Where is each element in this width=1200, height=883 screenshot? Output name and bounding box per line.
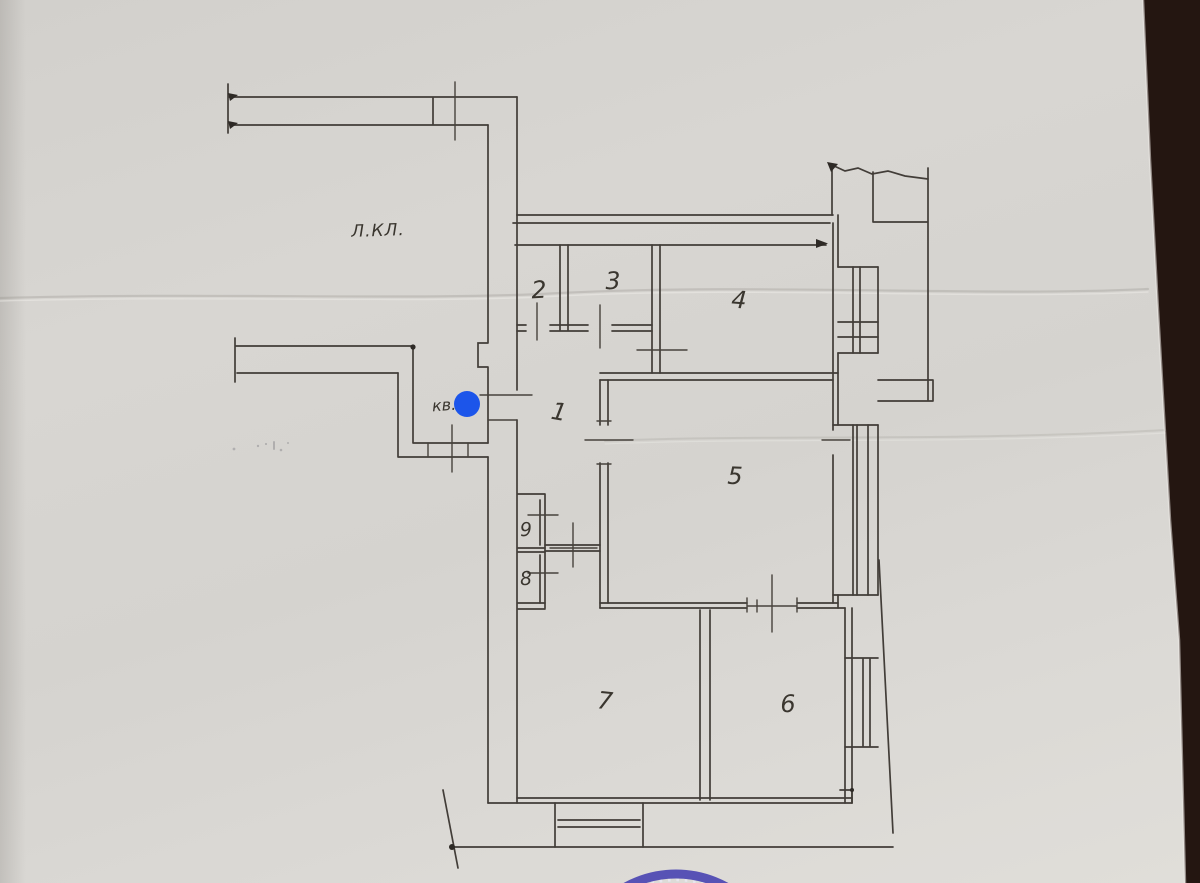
room-label-2: 2 (531, 276, 548, 305)
wall-lines (228, 84, 933, 868)
stairwell-label: Л.КЛ. (351, 220, 405, 242)
apartment-label: кв. (431, 395, 456, 416)
photo-of-floor-plan: Л.КЛ. кв. 1 2 3 4 5 6 7 8 9 (0, 0, 1200, 883)
paper-crease (0, 289, 1165, 444)
room-label-4: 4 (730, 286, 747, 315)
round-stamp (572, 874, 780, 883)
paper-edge (1143, 0, 1185, 883)
room-label-7: 7 (596, 686, 614, 715)
faint-smudge (233, 441, 289, 451)
room-label-9: 9 (519, 519, 532, 542)
room-label-8: 8 (519, 568, 533, 591)
room-label-3: 3 (605, 267, 621, 296)
floor-plan-drawing (0, 0, 1200, 883)
door-window-ticks (428, 82, 850, 632)
location-marker-dot (454, 391, 480, 417)
pen-marks (228, 93, 854, 850)
room-label-5: 5 (727, 462, 743, 491)
room-label-6: 6 (780, 690, 796, 719)
